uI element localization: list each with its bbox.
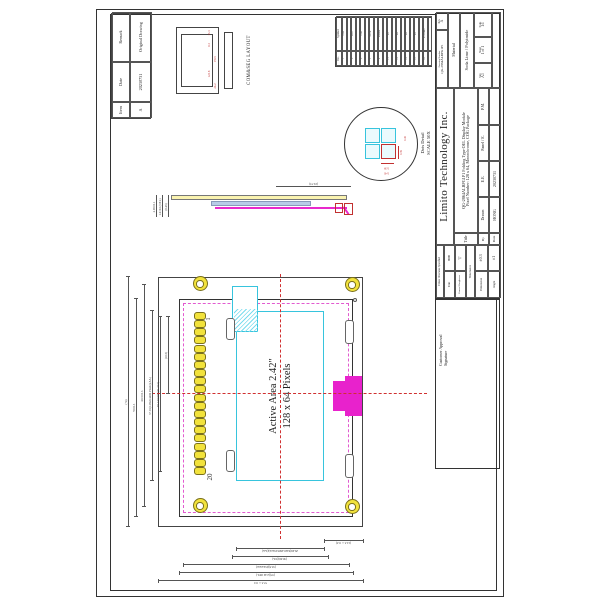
pin-pad [194, 410, 206, 418]
comseg-strip-rect [224, 32, 233, 89]
comseg-label: COM&SEG LAYOUT [247, 18, 252, 102]
pixel-dot [381, 128, 396, 143]
dimension-tol: ±0.3 [475, 245, 488, 271]
pin-pad [194, 320, 206, 328]
rev-cell: Rev. A [436, 12, 448, 30]
pin-pad [194, 369, 206, 377]
dots-detail-label: Dots Detail [420, 120, 425, 166]
pin-pad [194, 459, 206, 467]
mounting-hole-bore [348, 503, 356, 511]
mounting-hole-bore [348, 281, 356, 289]
pm-sign-cell [489, 88, 501, 125]
alignment-slot [345, 454, 354, 478]
pin-pad [194, 336, 206, 344]
dim-label: 70±0.3 [132, 299, 136, 517]
detail-dim: 0.39 [400, 146, 403, 159]
pin-pad [194, 361, 206, 369]
fpc-connector-body [345, 376, 362, 416]
mounting-hole [193, 499, 208, 514]
dim-line [144, 285, 145, 507]
revision-header: Date [112, 62, 130, 102]
pin-pad [194, 353, 206, 361]
horizontal-centerline [280, 274, 281, 539]
alignment-slot [226, 450, 235, 472]
dim-line [168, 317, 169, 394]
comseg-dim: 13.3 [207, 26, 211, 40]
pin-pad [194, 402, 206, 410]
ee-sign-cell [489, 125, 501, 161]
pin-table-cell: VCC [428, 16, 433, 51]
drawing-title: QG-2864ALBPG1P1 Folding Type OEL Display… [454, 88, 478, 233]
size-cell: Size A3 [474, 63, 492, 88]
pin-table-cell: 20 [428, 51, 433, 66]
title-label: Title [454, 233, 478, 245]
scale-cell: Scale 1:1 [474, 12, 492, 37]
ee-label: E.E. [478, 161, 489, 197]
dimension-label: Dimension [475, 271, 488, 298]
unit-value: mm [444, 245, 455, 271]
revision-value: Original Drawing [130, 12, 152, 62]
size-value: A3 [482, 73, 486, 77]
pin1-label: 1 [206, 314, 212, 324]
side-span-dim: (19.73) [276, 183, 351, 187]
side-dim-line [168, 195, 169, 217]
dim-tick [324, 547, 325, 551]
pin-pad [194, 451, 206, 459]
comseg-dim: P0.5 [213, 52, 217, 66]
revision-value: 20230731 [130, 62, 152, 102]
unit-label: Unit [444, 271, 455, 298]
title-block: Unless Otherwise Specified Unit mm Gener… [435, 13, 500, 299]
customer-approval-box: Customer Approval Signature [435, 299, 500, 469]
drawing-title-line2: Pixel Number: 128 x 64, Monochrome, COG … [466, 112, 470, 209]
mounting-hole-bore [196, 280, 204, 288]
alignment-slot [345, 320, 354, 344]
sheet-value: 1 of 1 [482, 46, 486, 54]
drawing-number-value: QG-2864ALBPG1P1 [441, 44, 445, 73]
comseg-dim: 123.8 [207, 66, 211, 82]
side-connector-outline2 [344, 203, 353, 215]
drawing-sheet: ItemDateRemarkA20230731Original Drawing … [96, 9, 504, 597]
index-circle [353, 298, 357, 302]
side-connector-outline [335, 203, 343, 213]
detail-dim: 0.45 [380, 171, 394, 175]
pixel-dot [365, 144, 380, 159]
pin-pad [194, 312, 206, 320]
material-label: Material [448, 12, 460, 88]
detail-dim-line [398, 146, 399, 159]
dim-label: 60.5±0.3 [140, 285, 144, 507]
material-value: Soda Lime / Polyimide [460, 12, 474, 88]
pin-pad [194, 328, 206, 336]
side-polarizer [211, 201, 311, 206]
pin-assignment-table: No.Symbol1VSS2VDD3BS14BS25CS#6RES#7D/C#8… [335, 17, 432, 67]
comseg-dim: 26.2 [213, 79, 217, 93]
side-dim-line [162, 195, 163, 217]
dim-label: P1.143x19=(21.717) [156, 317, 160, 472]
dim-label: 29.49(64x0.4606 Pixels)(AA) [236, 550, 324, 554]
drawing-number-cell: Drawing Number QG-2864ALBPG1P1 [436, 30, 448, 88]
sheet-cell: Sheet 1 of 1 [474, 37, 492, 63]
dim-label: 57.3±0.5 [158, 582, 363, 586]
tolerance-title: Tolerance [466, 245, 475, 298]
drawing-canvas: ItemDateRemarkA20230731Original Drawing … [0, 0, 600, 600]
by-label: By [478, 233, 489, 245]
drawn-label: Drawn [478, 197, 489, 233]
pin20-label: 20 [206, 470, 214, 484]
roughness-label: General Roughness [455, 271, 466, 298]
revision-value: A [130, 102, 152, 118]
revision-header: Item [112, 102, 130, 118]
dim-line [128, 277, 129, 527]
dim-tick [363, 579, 364, 583]
rev-value: A [441, 19, 445, 24]
company-name: Limito Technology Inc. [436, 88, 454, 245]
detail-dim: 0.39 [380, 166, 394, 170]
active-area-line2: 128 x 64 Pixels [282, 358, 293, 434]
pm-label: P.M. [478, 88, 489, 125]
roughness-symbol: ▽ [455, 245, 466, 271]
pixel-dot [381, 144, 396, 159]
side-dim-line [156, 195, 157, 217]
dim-line [160, 317, 161, 472]
dim-tick [328, 555, 329, 559]
scale-value: 1:1 [482, 22, 486, 28]
detail-dim: 0.45 [404, 132, 407, 145]
pin-pad [194, 467, 206, 475]
side-fpc [215, 207, 347, 209]
dim-label: (10.5) [164, 317, 168, 394]
comseg-dim: 0.3 [207, 40, 211, 50]
mounting-hole [345, 278, 360, 293]
spare-cell [492, 12, 501, 88]
pin-pad [194, 394, 206, 402]
dim-label: (37)(2.42 OEL) [179, 574, 353, 578]
pin-pad [194, 345, 206, 353]
vertical-centerline [152, 393, 427, 394]
dim-label: (12.3±0.3) [324, 542, 363, 546]
side-glass [171, 195, 347, 200]
dim-line [152, 311, 153, 481]
pin-pad [194, 377, 206, 385]
detail-dim-line [381, 163, 394, 164]
mounting-hole-bore [196, 502, 204, 510]
revision-header: Remark [112, 12, 130, 62]
cog-hatch [234, 309, 258, 332]
mounting-hole [193, 277, 208, 292]
dim-label: (30.69)(VA) [232, 558, 328, 562]
revision-table: ItemDateRemarkA20230731Original Drawing [111, 13, 151, 119]
pin-pad [194, 385, 206, 393]
dim-tick [353, 571, 354, 575]
pin-pad [194, 434, 206, 442]
dim-label: (33.5)(Polarizer) [183, 566, 349, 570]
dots-detail-scale: SCALE 50X [426, 120, 431, 166]
pixel-dot [365, 128, 380, 143]
angle-label: Angle [488, 271, 501, 298]
drawn-value: HONG [489, 197, 501, 233]
pin-pad [194, 443, 206, 451]
alignment-slot [226, 318, 235, 340]
tolerance-header: Unless Otherwise Specified [436, 245, 444, 298]
dim-tick [349, 563, 350, 567]
active-area-line1: Active Area 2.42" [268, 358, 279, 434]
date-label: Date [489, 233, 501, 245]
angle-tol: ±1 [488, 245, 501, 271]
dim-tick [363, 539, 364, 543]
pin-pad [194, 418, 206, 426]
panel-label: Panel / E. [478, 125, 489, 161]
side-span-line [276, 186, 351, 187]
pin-pad [194, 426, 206, 434]
dim-label: 57.01(128x0.4486 Pixels)(AA) [148, 311, 152, 481]
date-value: 20230731 [489, 161, 501, 197]
mounting-hole [345, 500, 360, 515]
dim-line [136, 299, 137, 517]
signature-label: Signature [443, 300, 448, 366]
dim-label: (74) [124, 277, 128, 527]
